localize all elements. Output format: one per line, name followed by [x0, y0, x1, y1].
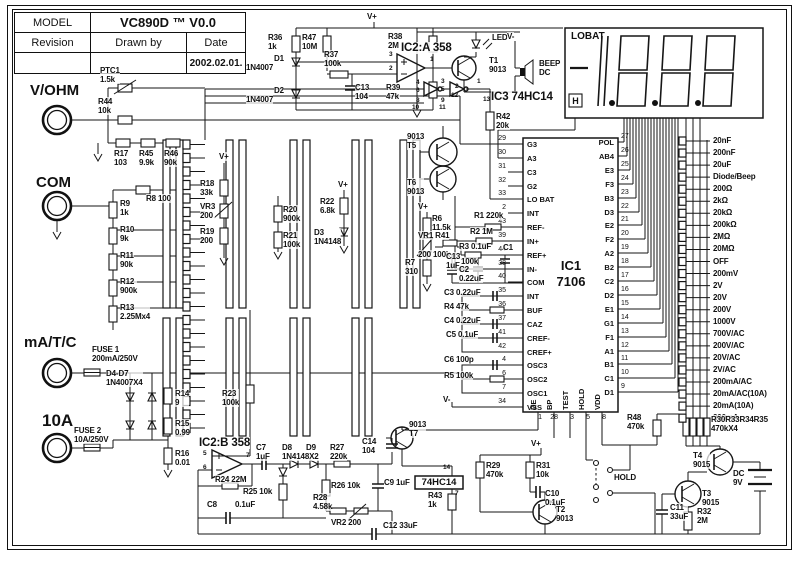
- label-r37: R37 100k: [324, 50, 341, 68]
- ic1-pin-number-30: 30: [486, 149, 506, 156]
- label-r43: R43 1k: [428, 491, 442, 509]
- label-r4: R4 47k: [444, 302, 469, 311]
- label-1n4007: 1N4007: [246, 63, 273, 72]
- label-r42: R42 20k: [496, 112, 510, 130]
- label-7: 7: [246, 452, 249, 459]
- ic1-pin-number-35: 35: [486, 287, 506, 294]
- label-v: V+: [531, 439, 541, 448]
- ic1-pin-name-vdd: VDD: [593, 384, 602, 410]
- label-beep: BEEP DC: [539, 59, 560, 77]
- range-label-200maac: 200mA/AC: [713, 377, 752, 386]
- ic1-pin-number-7: 7: [486, 384, 506, 391]
- label-c1: C1: [503, 243, 513, 252]
- label-3: 3: [441, 78, 444, 85]
- label-r24: R24 22M: [215, 475, 246, 484]
- label-r21: R21 100k: [283, 231, 300, 249]
- range-label-20m: 20MΩ: [713, 244, 734, 253]
- ic1-pin-number-11: 11: [621, 355, 628, 362]
- range-label-2v: 2V: [713, 281, 723, 290]
- ic1-pin-name-g3: G3: [527, 140, 537, 149]
- label-v: V+: [418, 202, 428, 211]
- label-1: 1: [477, 78, 480, 85]
- label-r31: R31 10k: [536, 461, 550, 479]
- label-r30r33r34r35: R30R33R34R35 470kX4: [711, 415, 768, 433]
- ic1-pin-name-g2: G2: [527, 182, 537, 191]
- lobat-label: LOBAT: [571, 31, 605, 42]
- range-label-200k: 200kΩ: [713, 220, 736, 229]
- ic1-pin-name-in-: IN-: [527, 265, 537, 274]
- range-label-20nf: 20nF: [713, 136, 731, 145]
- ic1-pin-name-e1: E1: [572, 305, 614, 314]
- label-c3: C3 0.22uF: [444, 288, 480, 297]
- label-9013: 9013 T7: [409, 420, 426, 438]
- label-c2: C2 0.22uF: [459, 265, 483, 283]
- label-ptc1: PTC1 1.5k: [100, 66, 120, 84]
- label-r1: R1 220k: [474, 211, 503, 220]
- ic1-pin-name-a3: A3: [527, 154, 537, 163]
- label-c11: C11 33uF: [670, 503, 688, 521]
- ic1-pin-number-32: 32: [486, 177, 506, 184]
- ic1-pin-name-osc3: OSC3: [527, 361, 547, 370]
- label-fuse: FUSE 1 200mA/250V: [92, 345, 138, 363]
- ic1-pin-name-a2: A2: [572, 249, 614, 258]
- label-ic3: IC3 74HC14: [491, 91, 553, 103]
- label-r47: R47 10M: [302, 33, 317, 51]
- schematic-page: MODEL VC890D ™ V0.0 Revision Drawn by Da…: [0, 0, 800, 561]
- label-r32: R32 2M: [697, 507, 711, 525]
- ic1-pin-number-13: 13: [621, 328, 629, 335]
- label-14: 14: [443, 464, 450, 471]
- label-d2: D2: [274, 86, 284, 95]
- ic1-pin-number-6: 6: [486, 370, 506, 377]
- label-r10: R10 9k: [120, 225, 134, 243]
- label-7: 7: [455, 490, 458, 497]
- ic1-pin-name-hold: HOLD: [577, 384, 586, 410]
- label-01uf: 0.1uF: [235, 500, 255, 509]
- ic1-pin-name-ref+: REF+: [527, 251, 546, 260]
- hold-symbol: H: [569, 95, 582, 107]
- ic1-pin-name-e2: E2: [572, 221, 614, 230]
- label-6: 6: [203, 464, 206, 471]
- label-t3: T3 9015: [702, 489, 719, 507]
- label-r15: R15 0.99: [175, 419, 190, 437]
- label-d4d7: D4-D7 1N4007X4: [106, 369, 143, 387]
- label-1n4007: 1N4007: [246, 95, 273, 104]
- label-3: 3: [389, 51, 392, 58]
- label-r17: R17 103: [114, 149, 128, 167]
- label-t2: T2 9013: [556, 505, 573, 523]
- label-vr2: VR2 200: [331, 518, 361, 527]
- label-t1: T1 9013: [489, 56, 506, 74]
- label-r20: R20 900k: [283, 205, 300, 223]
- ic1-pin-number-27: 27: [621, 133, 629, 140]
- range-label-20ma10a: 20mA(10A): [713, 401, 753, 410]
- ic1-pin-name-pol: POL: [572, 138, 614, 147]
- range-label-2k: 2kΩ: [713, 196, 728, 205]
- ic1-pin-number-18: 18: [621, 258, 629, 265]
- label-r23: R23 100k: [222, 389, 239, 407]
- label-v: V-: [507, 32, 514, 41]
- label-r29: R29 470k: [486, 461, 503, 479]
- ic1-pin-number-9: 9: [621, 383, 625, 390]
- label-9013: 9013 T5: [407, 132, 424, 150]
- label-r18: R18 33k: [200, 179, 214, 197]
- range-label-20v: 20V: [713, 293, 727, 302]
- ic1-pin-number-17: 17: [621, 272, 629, 279]
- label-r22: R22 6.8k: [320, 197, 335, 215]
- label-10: 10: [412, 104, 419, 111]
- label-vr3: VR3 200: [200, 202, 215, 220]
- label-6: 6: [416, 87, 419, 94]
- ic1-pin-number-37: 37: [486, 315, 506, 322]
- label-c5: C5 0.1uF: [446, 330, 478, 339]
- label-r46: R46 90k: [164, 149, 178, 167]
- label-dc: DC 9V: [733, 469, 744, 487]
- ic1-pin-number-34: 34: [486, 398, 506, 405]
- ic1-pin-number-15: 15: [621, 300, 629, 307]
- ic1-pin-number-16: 16: [621, 286, 629, 293]
- ic1-pin-number-8: 8: [586, 414, 606, 421]
- ic1-pin-number-26: 26: [621, 147, 629, 154]
- label-r25: R25 10k: [243, 487, 272, 496]
- ic1-pin-name-bp: BP: [545, 384, 554, 410]
- label-5: 5: [203, 450, 206, 457]
- label-r6: R6 11.5k: [432, 214, 451, 232]
- label-2: 2: [455, 83, 458, 90]
- ic1-pin-name-cref-: CREF-: [527, 334, 550, 343]
- ic1-pin-number-12: 12: [621, 342, 629, 349]
- range-label-200v: 200V: [713, 305, 731, 314]
- ic1-pin-number-33: 33: [486, 190, 506, 197]
- ic1-pin-number-21: 21: [621, 216, 629, 223]
- ic1-pin-number-42: 42: [486, 343, 506, 350]
- ic1-pin-number-14: 14: [621, 314, 629, 321]
- label-t6: T6 9013: [407, 178, 424, 196]
- ic1-pin-name-lobat: LO BAT: [527, 195, 554, 204]
- label-r5: R5 100k: [444, 371, 473, 380]
- terminal-com-label: COM: [36, 174, 71, 191]
- label-5: 5: [441, 86, 444, 93]
- label-r16: R16 0.01: [175, 449, 190, 467]
- label-c7: C7 1uF: [256, 443, 270, 461]
- ic1-pin-number-40: 40: [486, 273, 506, 280]
- range-label-700vac: 700V/AC: [713, 329, 744, 338]
- ic1-pin-number-20: 20: [621, 230, 629, 237]
- label-r14: R14 9: [175, 389, 189, 407]
- label-13: 13: [483, 96, 490, 103]
- labels-overlay: V/OHM COM mA/T/C 10A LOBAT H IC1 7106 74…: [0, 0, 800, 561]
- label-hold: HOLD: [614, 473, 636, 482]
- range-label-20vac: 20V/AC: [713, 353, 740, 362]
- label-r9: R9 1k: [120, 199, 130, 217]
- range-label-2m: 2MΩ: [713, 232, 730, 241]
- terminal-vohm-label: V/OHM: [30, 82, 79, 99]
- label-v: V-: [443, 395, 450, 404]
- range-label-1000v: 1000V: [713, 317, 735, 326]
- label-c13: C13 104: [355, 83, 369, 101]
- range-label-2vac: 2V/AC: [713, 365, 736, 374]
- ic1-pin-number-10: 10: [621, 369, 629, 376]
- ic1-pin-number-23: 23: [621, 189, 629, 196]
- ic1-pin-name-f3: F3: [572, 180, 614, 189]
- label-r19: R19 200: [200, 227, 214, 245]
- label-r7: R7 310: [405, 258, 418, 276]
- ic1-pin-number-41: 41: [486, 329, 506, 336]
- label-r3: R3 0.1uF: [459, 242, 491, 251]
- terminal-10a-label: 10A: [42, 411, 73, 431]
- ic1-pin-name-caz: CAZ: [527, 320, 542, 329]
- ic1-pin-name-f1: F1: [572, 333, 614, 342]
- ic1-pin-name-ref-: REF-: [527, 223, 545, 232]
- ic1-pin-number-29: 29: [486, 135, 506, 142]
- ic1-pin-name-g1: G1: [572, 319, 614, 328]
- label-c4: C4 0.22uF: [444, 316, 480, 325]
- ic1-pin-name-b3: B3: [572, 194, 614, 203]
- ic1-pin-name-com: COM: [527, 278, 545, 287]
- ic1-pin-number-22: 22: [621, 203, 629, 210]
- label-v: V+: [338, 180, 348, 189]
- range-label-diodebeep: Diode/Beep: [713, 172, 756, 181]
- label-c14: C14 104: [362, 437, 376, 455]
- ic1-pin-name-int: INT: [527, 292, 539, 301]
- ic1-pin-name-ab4: AB4: [572, 152, 614, 161]
- label-v: V+: [219, 152, 229, 161]
- ic1-pin-name-c3: C3: [527, 168, 537, 177]
- label-ic2b: IC2:B 358: [199, 437, 250, 449]
- ic1-pin-name-b1: B1: [572, 360, 614, 369]
- ic1-pin-name-int: INT: [527, 209, 539, 218]
- label-d9: D9: [306, 443, 316, 452]
- ic1-pin-name-d2: D2: [572, 291, 614, 300]
- ic1-pin-name-in+: IN+: [527, 237, 539, 246]
- label-11: 11: [439, 104, 446, 111]
- ic1-pin-number-31: 31: [486, 163, 506, 170]
- label-1: 1: [430, 56, 433, 63]
- ic1-pin-number-38: 38: [486, 260, 506, 267]
- ic1-pin-name-d3: D3: [572, 208, 614, 217]
- ic1-pin-number-25: 25: [621, 161, 629, 168]
- ic1-pin-name-cref+: CREF+: [527, 348, 552, 357]
- label-t4: T4 9015: [693, 451, 710, 469]
- label-r39: R39 47k: [386, 83, 400, 101]
- label-ic2a: IC2:A 358: [401, 42, 452, 54]
- range-label-200vac: 200V/AC: [713, 341, 744, 350]
- label-c12: C12 33uF: [383, 521, 417, 530]
- label-4: 4: [416, 79, 419, 86]
- terminal-matc-label: mA/T/C: [24, 334, 77, 351]
- label-d1: D1: [274, 54, 284, 63]
- label-r2: R2 1M: [470, 227, 493, 236]
- ic1-pin-number-19: 19: [621, 244, 629, 251]
- label-c8: C8: [207, 500, 217, 509]
- ic1-pin-name-c2: C2: [572, 277, 614, 286]
- label-r11: R11 90k: [120, 251, 134, 269]
- ic1-pin-name-b2: B2: [572, 263, 614, 272]
- ic1-pin-name-f2: F2: [572, 235, 614, 244]
- label-12: 12: [451, 92, 458, 99]
- label-r45: R45 9.9k: [139, 149, 154, 167]
- label-r44: R44 10k: [98, 97, 112, 115]
- ic1-pin-name-a1: A1: [572, 347, 614, 356]
- range-label-200nf: 200nF: [713, 148, 735, 157]
- label-r26: R26 10k: [331, 481, 360, 490]
- label-2: 2: [389, 65, 392, 72]
- label-r28: R28 4.58k: [313, 493, 332, 511]
- label-r13: R13 2.25Mx4: [120, 303, 150, 321]
- label-r48: R48 470k: [627, 413, 644, 431]
- range-label-20maac10a: 20mA/AC(10A): [713, 389, 767, 398]
- ic1-pin-name-c1: C1: [572, 374, 614, 383]
- range-label-200mv: 200mV: [713, 269, 738, 278]
- ic1-pin-name-osc2: OSC2: [527, 375, 547, 384]
- label-v: V+: [367, 12, 377, 21]
- range-label-off: OFF: [713, 257, 729, 266]
- ic1-pin-number-4: 4: [486, 356, 506, 363]
- label-r12: R12 900k: [120, 277, 137, 295]
- range-label-20uf: 20uF: [713, 160, 731, 169]
- label-c9: C9 1uF: [384, 478, 410, 487]
- ic1-pin-number-2: 2: [486, 204, 506, 211]
- label-c6: C6 100p: [444, 355, 474, 364]
- label-r36: R36 1k: [268, 33, 282, 51]
- label-fuse: FUSE 2 10A/250V: [74, 426, 108, 444]
- ic1-pin-name-e3: E3: [572, 166, 614, 175]
- label-d3: D3 1N4148: [314, 228, 341, 246]
- range-label-20k: 20kΩ: [713, 208, 732, 217]
- range-label-200: 200Ω: [713, 184, 732, 193]
- ic4-label: 74HC14: [415, 476, 463, 489]
- label-led: LED: [492, 33, 508, 42]
- ic1-pin-number-24: 24: [621, 175, 629, 182]
- ic1-pin-name-de: DE: [529, 384, 538, 410]
- label-vr1: VR1 R41: [418, 231, 449, 240]
- label-r8: R8 100: [146, 194, 171, 203]
- ic1-pin-number-36: 36: [486, 301, 506, 308]
- ic1-pin-name-buf: BUF: [527, 306, 542, 315]
- ic1-pin-name-test: TEST: [561, 384, 570, 410]
- label-r27: R27 220k: [330, 443, 347, 461]
